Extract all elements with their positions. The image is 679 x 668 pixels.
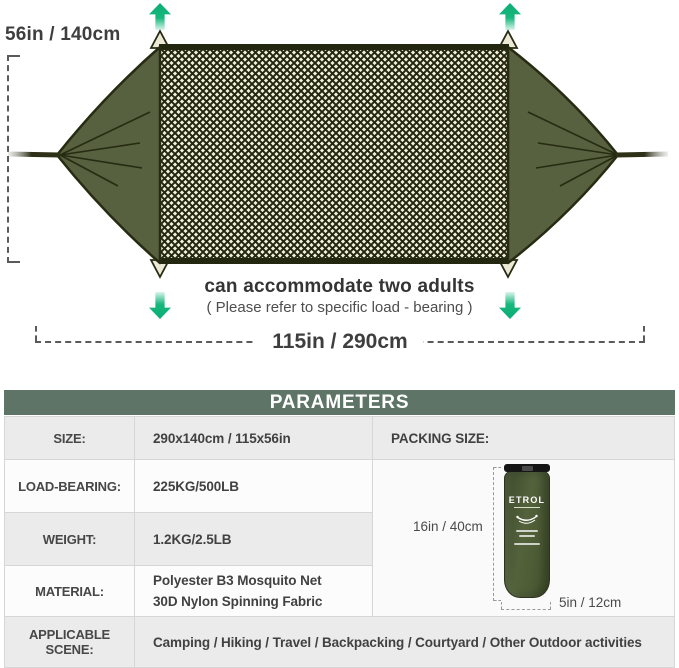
packing-size-cell: 16in / 40cm ETROL: [373, 460, 674, 616]
bag-width-label: 5in / 12cm: [559, 595, 621, 610]
parameters-section: PARAMETERS SIZE: 290x140cm / 115x56in PA…: [4, 390, 675, 668]
bag-text-line: [514, 543, 540, 545]
height-dimension-line: [7, 55, 21, 263]
bag-divider: [514, 507, 540, 508]
bag-text-line: [519, 535, 535, 537]
load-bearing-label: LOAD-BEARING:: [5, 460, 134, 512]
hammock-left-end: [57, 47, 160, 263]
bag-text-line: [516, 530, 538, 532]
bag-rolltop-strap: [504, 464, 550, 472]
height-dimension-label: 56in / 140cm: [5, 24, 120, 46]
material-label: MATERIAL:: [5, 566, 134, 616]
load-bearing-value: 225KG/500LB: [135, 460, 372, 512]
bag-body: ETROL: [504, 470, 550, 598]
hammock-diagram: 56in / 140cm can accommodate two adults …: [0, 0, 679, 388]
capacity-subtitle: ( Please refer to specific load - bearin…: [0, 299, 679, 316]
right-rope: [616, 154, 668, 155]
bag-width-dimension-line: [501, 602, 551, 610]
width-dimension-label: 115in / 290cm: [256, 330, 423, 354]
weight-label: WEIGHT:: [5, 513, 134, 565]
net-bottom-band: [159, 258, 509, 264]
parameters-table: SIZE: 290x140cm / 115x56in PACKING SIZE:…: [4, 416, 675, 668]
bag-height-label: 16in / 40cm: [413, 519, 483, 534]
stuff-sack-image: ETROL: [503, 464, 551, 604]
material-line-2: 30D Nylon Spinning Fabric: [153, 591, 322, 612]
material-line-1: Polyester B3 Mosquito Net: [153, 570, 322, 591]
bag-height-dimension-line: [493, 467, 503, 601]
size-label: SIZE:: [5, 417, 134, 459]
applicable-scene-label: APPLICABLE SCENE:: [5, 617, 134, 667]
material-value: Polyester B3 Mosquito Net 30D Nylon Spin…: [135, 566, 372, 616]
size-value: 290x140cm / 115x56in: [135, 417, 372, 459]
bag-hammock-logo-icon: [515, 511, 539, 527]
net-top-band: [159, 44, 509, 50]
bag-buckle-icon: [522, 466, 533, 471]
width-dimension-line: 115in / 290cm: [35, 341, 645, 343]
capacity-caption: can accommodate two adults ( Please refe…: [0, 276, 679, 316]
parameters-header: PARAMETERS: [4, 390, 675, 415]
applicable-scene-value: Camping / Hiking / Travel / Backpacking …: [135, 617, 674, 667]
mosquito-net-panel: [160, 45, 508, 263]
weight-value: 1.2KG/2.5LB: [135, 513, 372, 565]
hammock-right-end: [508, 47, 618, 263]
capacity-title: can accommodate two adults: [0, 276, 679, 298]
bag-brand-label: ETROL: [505, 495, 549, 505]
packing-size-label: PACKING SIZE:: [373, 417, 674, 459]
product-infographic: 56in / 140cm can accommodate two adults …: [0, 0, 679, 668]
